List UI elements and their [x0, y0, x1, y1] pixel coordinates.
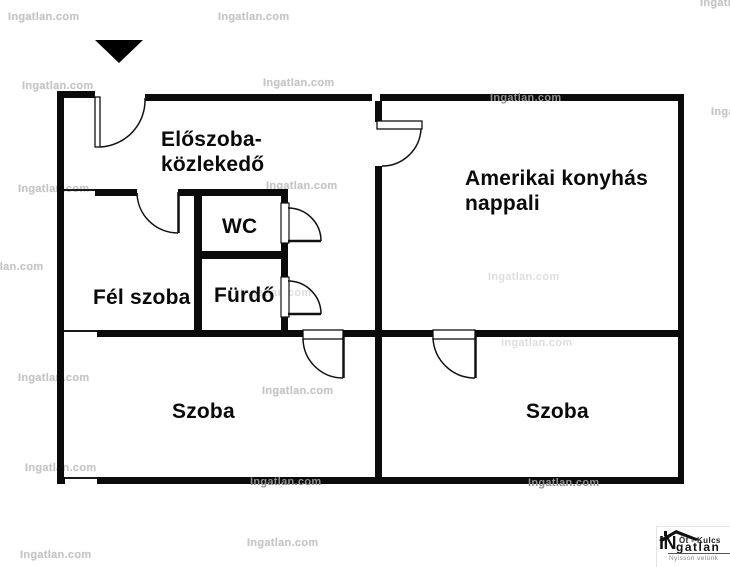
watermark: Ingatlan.com — [250, 476, 321, 488]
logo-text-gatlan: gatlan — [676, 540, 720, 554]
wc-door — [281, 203, 321, 243]
agency-logo: IN Öt - Kulcs gatlan Nyisson velünk — [656, 526, 730, 567]
right-room-door — [433, 330, 476, 378]
watermark: Ingatlan.com — [528, 477, 599, 489]
bathroom-door — [281, 277, 321, 317]
watermark: Ingatlan.com — [490, 92, 561, 104]
entrance-door — [95, 97, 145, 147]
living-room-door — [377, 121, 422, 166]
logo-text-in: IN — [659, 533, 676, 554]
felszoba-door — [137, 192, 179, 233]
left-room-door — [303, 330, 344, 378]
door-symbols-layer — [0, 0, 730, 567]
logo-divider — [668, 553, 730, 554]
floor-plan-image: Ingatlan.com Ingatlan.com Ingatlan.com I… — [0, 0, 730, 567]
logo-tagline: Nyisson velünk — [669, 555, 718, 562]
